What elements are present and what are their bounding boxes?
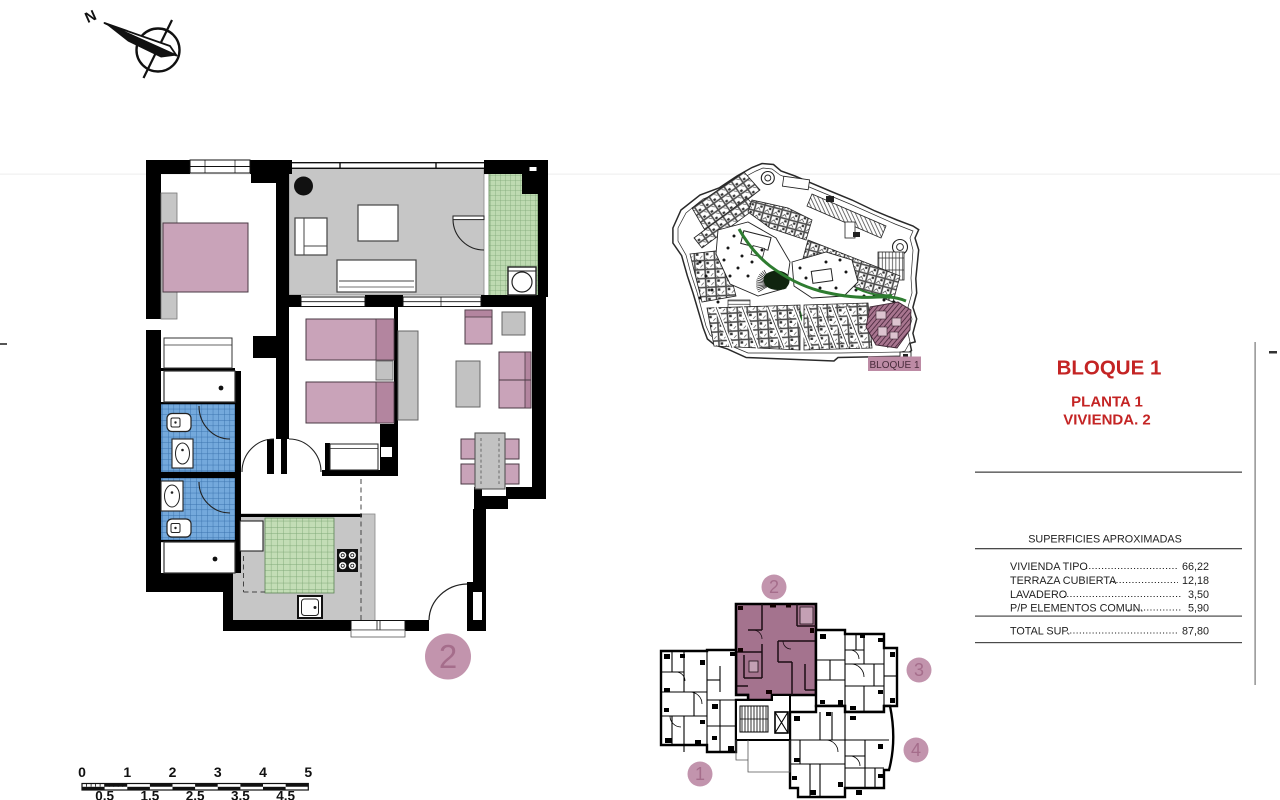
svg-text:4: 4 (911, 740, 921, 760)
svg-text:12,18: 12,18 (1182, 575, 1209, 587)
svg-text:3,50: 3,50 (1188, 589, 1209, 601)
svg-text:2: 2 (439, 638, 457, 675)
svg-text:3: 3 (914, 660, 924, 680)
svg-text:0: 0 (78, 764, 86, 780)
svg-text:5,90: 5,90 (1188, 603, 1209, 615)
svg-text:PLANTA 1: PLANTA 1 (1071, 394, 1143, 411)
svg-text:4: 4 (259, 764, 267, 780)
svg-text:P/P ELEMENTOS COMUN.: P/P ELEMENTOS COMUN. (1010, 603, 1143, 615)
svg-text:2: 2 (769, 577, 779, 597)
svg-text:1,5: 1,5 (141, 789, 160, 800)
svg-text:2: 2 (169, 764, 177, 780)
svg-text:87,80: 87,80 (1182, 626, 1209, 638)
svg-text:TOTAL SUP.: TOTAL SUP. (1010, 626, 1070, 638)
svg-text:LAVADERO: LAVADERO (1010, 589, 1067, 601)
svg-text:4,5: 4,5 (276, 789, 295, 800)
svg-text:2,5: 2,5 (186, 789, 205, 800)
svg-text:1: 1 (695, 764, 705, 784)
svg-text:3,5: 3,5 (231, 789, 250, 800)
svg-text:1: 1 (123, 764, 131, 780)
svg-text:3: 3 (214, 764, 222, 780)
svg-text:0,5: 0,5 (95, 789, 114, 800)
svg-text:VIVIENDA. 2: VIVIENDA. 2 (1063, 412, 1151, 429)
svg-text:BLOQUE 1: BLOQUE 1 (1057, 357, 1162, 380)
svg-text:SUPERFICIES APROXIMADAS: SUPERFICIES APROXIMADAS (1028, 534, 1182, 546)
svg-text:66,22: 66,22 (1182, 561, 1209, 573)
svg-text:5: 5 (304, 764, 312, 780)
svg-text:TERRAZA CUBIERTA: TERRAZA CUBIERTA (1010, 575, 1117, 587)
svg-text:BLOQUE 1: BLOQUE 1 (869, 360, 919, 371)
svg-text:VIVIENDA TIPO: VIVIENDA TIPO (1010, 561, 1088, 573)
